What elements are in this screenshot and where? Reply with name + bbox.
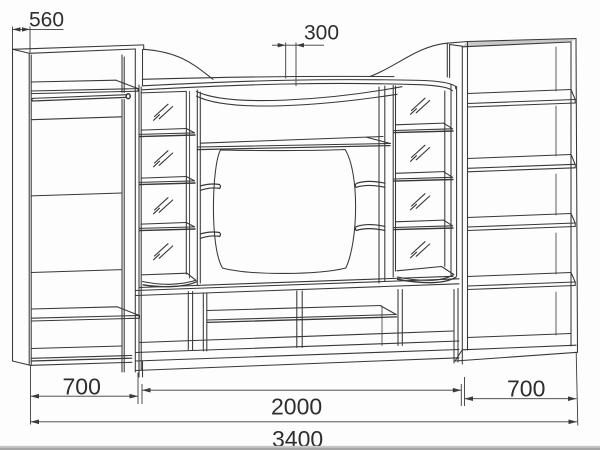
svg-text:300: 300 xyxy=(304,22,339,45)
svg-text:700: 700 xyxy=(507,376,545,402)
svg-text:560: 560 xyxy=(29,9,64,32)
svg-text:2000: 2000 xyxy=(271,394,322,420)
svg-text:700: 700 xyxy=(63,374,101,400)
